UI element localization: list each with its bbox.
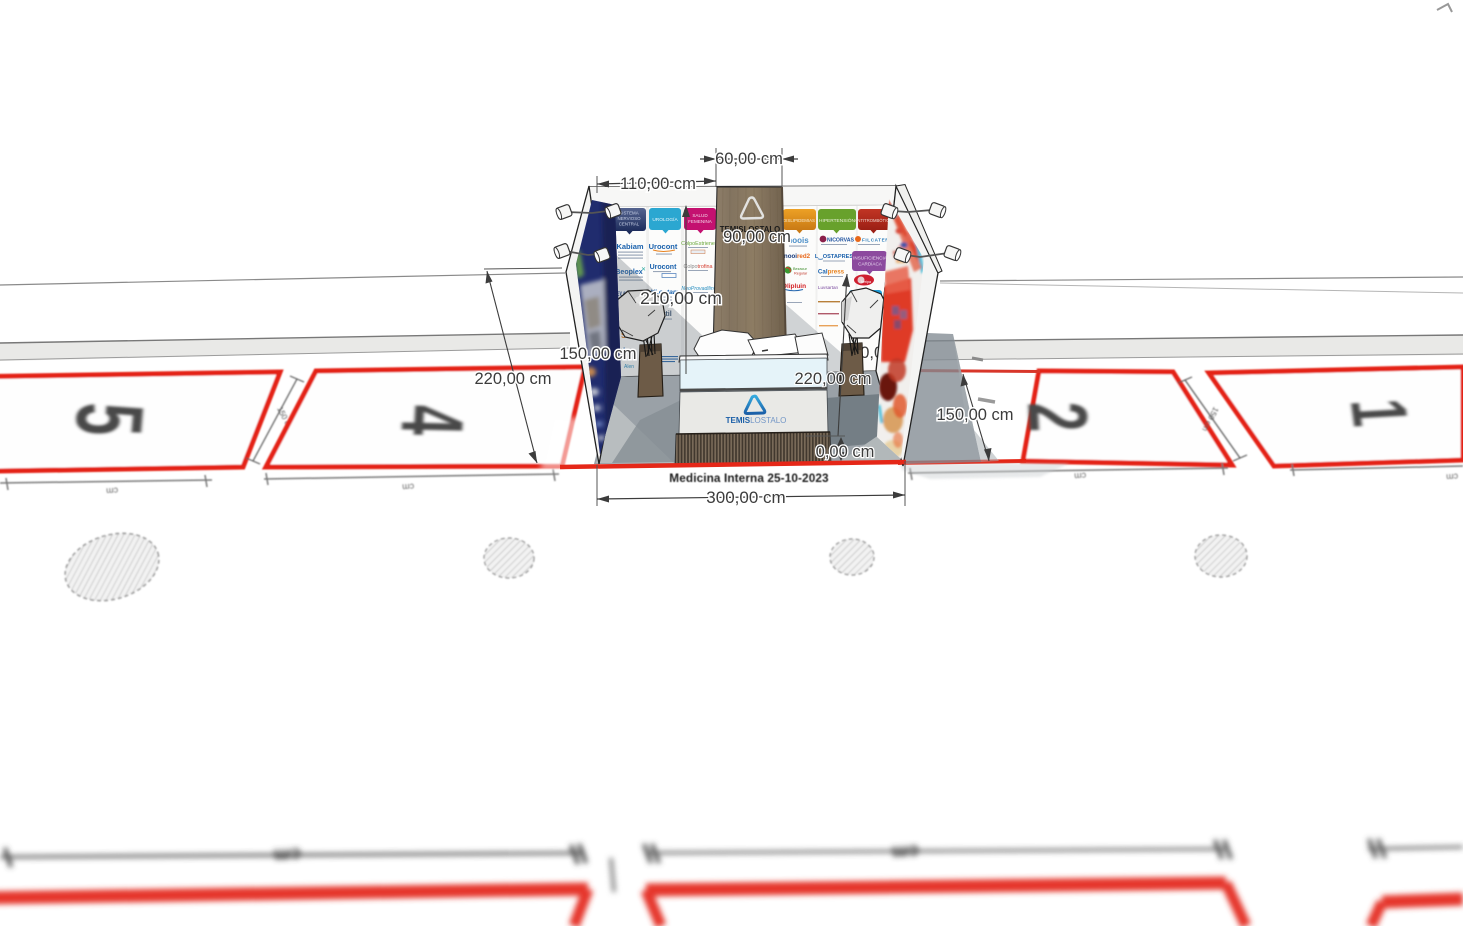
svg-text:SISTEMA: SISTEMA <box>619 211 638 216</box>
svg-text:Medicina Interna 25-10-2023: Medicina Interna 25-10-2023 <box>669 471 829 485</box>
svg-text:Colpotrofina: Colpotrofina <box>683 264 712 270</box>
svg-text:Olipluin: Olipluin <box>782 283 806 290</box>
svg-text:4: 4 <box>382 404 482 437</box>
svg-text:cm: cm <box>1446 472 1459 483</box>
svg-text:FEMENINA: FEMENINA <box>688 219 713 224</box>
svg-text:60,00 cm: 60,00 cm <box>715 150 783 168</box>
svg-text:Urocont: Urocont <box>649 242 678 251</box>
svg-text:nooired2: nooired2 <box>784 253 811 260</box>
svg-text:Urocont: Urocont <box>650 264 678 271</box>
svg-text:NERVIOSO: NERVIOSO <box>617 216 641 221</box>
svg-text:150,00 cm: 150,00 cm <box>936 406 1013 424</box>
svg-text:cm: cm <box>1074 471 1087 482</box>
svg-text:220,00 cm: 220,00 cm <box>474 370 551 388</box>
svg-text:INSUFICIENCIA: INSUFICIENCIA <box>853 256 888 261</box>
svg-text:CENTRAL: CENTRAL <box>619 222 640 227</box>
svg-text:90,00 cm: 90,00 cm <box>723 228 791 246</box>
svg-text:NICORVAS: NICORVAS <box>827 238 854 244</box>
svg-text:5: 5 <box>55 401 165 437</box>
svg-text:SALUD: SALUD <box>692 213 708 218</box>
svg-text:TEMISLOSTALO: TEMISLOSTALO <box>726 416 787 425</box>
svg-text:CARDÍACA: CARDÍACA <box>858 261 883 267</box>
svg-text:UROLOGÍA: UROLOGÍA <box>652 216 678 223</box>
svg-text:L‿OSTAPRES: L‿OSTAPRES <box>815 254 854 261</box>
svg-text:DISLIPIDEMIAS: DISLIPIDEMIAS <box>783 218 815 223</box>
svg-text:1: 1 <box>1334 396 1424 429</box>
svg-text:150,00 cm: 150,00 cm <box>559 345 636 363</box>
svg-text:110,00 cm: 110,00 cm <box>620 175 696 193</box>
svg-text:2: 2 <box>1010 401 1106 433</box>
svg-text:heripa: heripa <box>861 280 871 284</box>
svg-text:cm: cm <box>106 486 119 497</box>
svg-text:0,00 cm: 0,00 cm <box>816 443 875 461</box>
svg-text:✕: ✕ <box>641 267 646 273</box>
svg-text:Kabiam: Kabiam <box>616 242 643 251</box>
svg-text:220,00 cm: 220,00 cm <box>794 370 871 388</box>
svg-text:cm: cm <box>273 843 302 865</box>
svg-text:cm: cm <box>891 840 920 862</box>
svg-text:300,00 cm: 300,00 cm <box>706 488 785 507</box>
svg-text:cm: cm <box>402 482 415 493</box>
svg-text:210,00 cm: 210,00 cm <box>640 288 722 308</box>
svg-text:Calpress: Calpress <box>818 269 845 276</box>
svg-text:Bezacur: Bezacur <box>793 267 808 271</box>
svg-text:HIPERTENSIÓN: HIPERTENSIÓN <box>819 217 855 224</box>
svg-text:Regular: Regular <box>794 272 808 276</box>
svg-text:Luvsartan: Luvsartan <box>818 285 839 290</box>
